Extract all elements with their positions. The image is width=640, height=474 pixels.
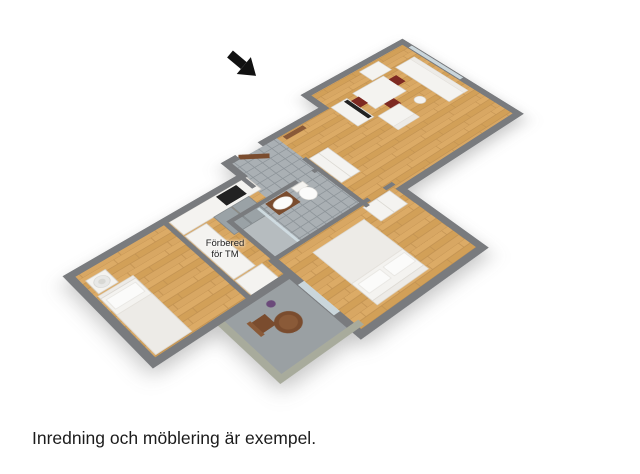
washing-machine-annotation: Förbered för TM	[206, 238, 245, 261]
caption: Inredning och möblering är exempel.	[32, 428, 316, 449]
floor-plan-svg	[23, 38, 609, 448]
annotation-line-2: för TM	[206, 249, 245, 260]
entrance-arrow-shaft	[227, 51, 247, 69]
floor-plan-page: { "scene": { "type": "3d-floor-plan", "c…	[0, 0, 640, 474]
floor-plan-3d-view	[23, 38, 609, 448]
annotation-line-1: Förbered	[206, 238, 245, 249]
entrance-arrow-head	[237, 57, 263, 84]
